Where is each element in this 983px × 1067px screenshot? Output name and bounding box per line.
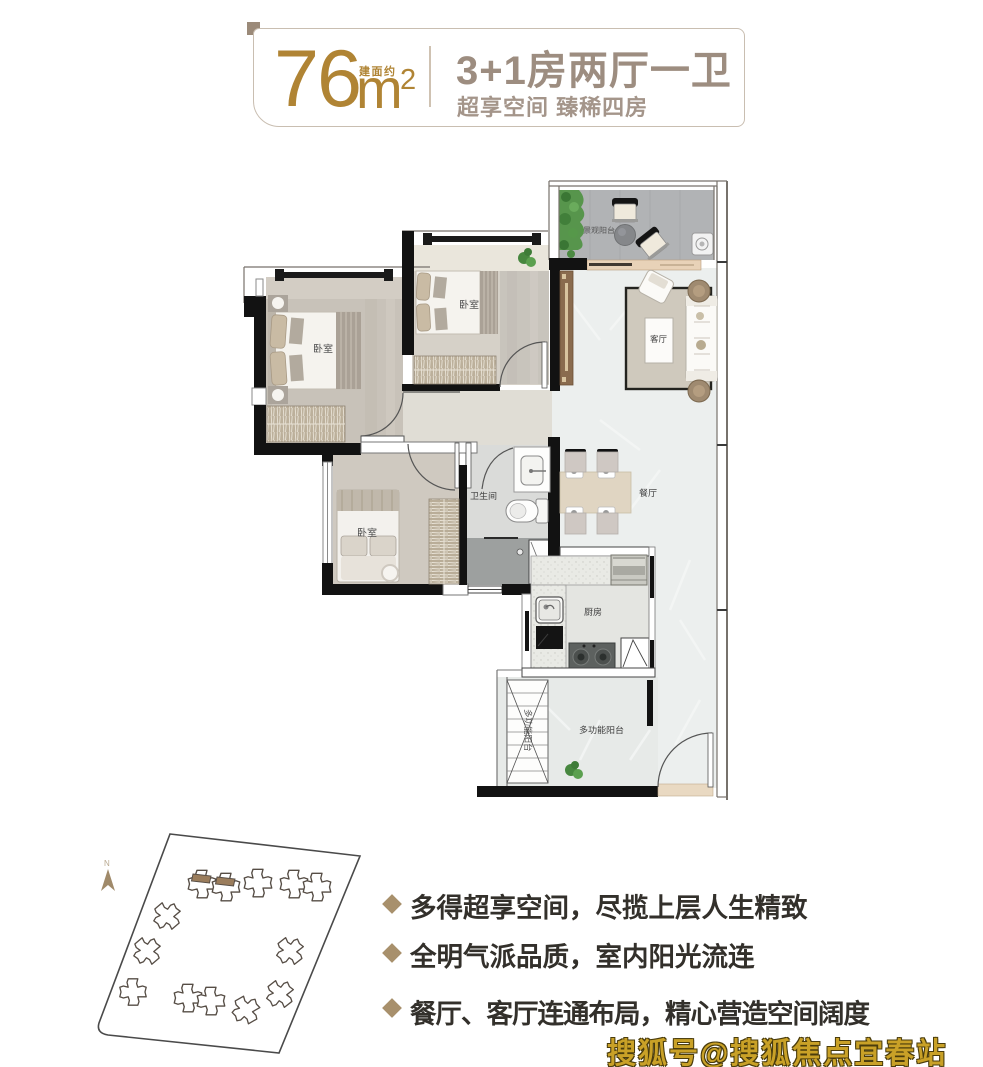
svg-text:多功能阳台: 多功能阳台 [523, 709, 533, 752]
svg-text:N: N [104, 859, 110, 868]
svg-text:卫生间: 卫生间 [470, 490, 497, 501]
svg-text:卧室: 卧室 [459, 298, 479, 311]
svg-text:卧室: 卧室 [313, 342, 333, 355]
svg-text:景观阳台: 景观阳台 [583, 225, 615, 235]
svg-text:客厅: 客厅 [650, 334, 668, 344]
svg-text:多功能阳台: 多功能阳台 [579, 724, 624, 735]
svg-text:卧室: 卧室 [357, 526, 377, 539]
svg-text:餐厅: 餐厅 [639, 487, 657, 498]
svg-text:厨房: 厨房 [584, 606, 602, 617]
